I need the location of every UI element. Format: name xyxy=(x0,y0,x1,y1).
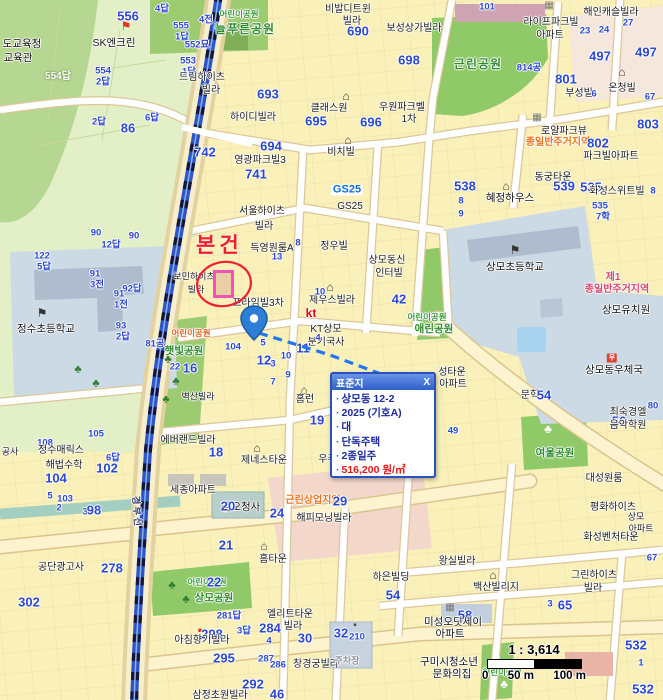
map-label: 구미시청소년 xyxy=(420,657,478,668)
parcel-number: 497 xyxy=(635,46,657,59)
map-label: GS25 xyxy=(337,202,363,212)
map-label: 빌라 xyxy=(584,584,602,594)
gs25-logo: GS25 xyxy=(331,185,363,196)
parcel-number: 104 xyxy=(45,472,67,485)
tree-icon: ♣ xyxy=(164,355,171,366)
tree-icon: ♣ xyxy=(162,395,169,406)
map-label: 음악학원 xyxy=(610,421,647,431)
railway-label: 경부선 xyxy=(130,496,142,529)
park-label: 여울공원 xyxy=(536,448,575,459)
popup-body: ·상모동 12-2·2025 (기호A)·대·단독주택·2종일주·516,200… xyxy=(332,390,434,477)
scale-tick-50: 50 m xyxy=(508,670,534,682)
parcel-number: 27 xyxy=(623,18,634,28)
map-label: 로얄파크뷰 xyxy=(541,127,587,137)
parcel-number: 90 xyxy=(129,231,140,241)
parcel-number: 86 xyxy=(121,122,135,135)
house-icon: ⌂ xyxy=(618,66,625,78)
map-label: 홈타운 xyxy=(259,555,287,565)
parcel-number: 19 xyxy=(310,414,324,427)
parcel-number: 13 xyxy=(272,252,283,262)
parcel-number: 67 xyxy=(645,92,656,102)
parcel-number: 2답 xyxy=(96,77,110,87)
map-label: 공사 xyxy=(2,448,19,457)
park-label: 늘푸른공원 xyxy=(215,23,275,35)
parcel-number: 101 xyxy=(479,2,495,12)
parcel-number: 54 xyxy=(537,389,551,402)
popup-item: ·단독주택 xyxy=(334,435,432,449)
map-label: 세종아파트 xyxy=(170,486,216,496)
map-label: 벽산빌라 xyxy=(181,393,214,402)
house-icon: ⌂ xyxy=(260,540,267,552)
map-label: 해피모닝빌라 xyxy=(296,514,351,524)
parcel-number: 24 xyxy=(270,507,284,520)
house-icon: ⌂ xyxy=(342,90,349,102)
zone-label: 종일반주거지역 xyxy=(526,138,590,148)
map-label: 하은빌딩 xyxy=(373,573,410,583)
parcel-number: 538 xyxy=(454,180,476,193)
parcel-number: 3 xyxy=(547,599,552,609)
standard-parcel-popup: 표준지 X ·상모동 12-2·2025 (기호A)·대·단독주택·2종일주·5… xyxy=(330,372,436,478)
building-icon: ▦ xyxy=(532,113,541,123)
tree-icon: ♣ xyxy=(172,377,179,388)
parcel-number: 9 xyxy=(458,209,463,219)
parcel-number: 46 xyxy=(270,688,284,700)
parcel-number: 497 xyxy=(589,50,611,63)
parcel-number: 54 xyxy=(386,589,400,602)
parcel-number: 4전 xyxy=(199,15,213,25)
parcel-number: 741 xyxy=(245,168,267,181)
parcel-number: 4답 xyxy=(155,4,169,14)
parcel-number: 8 xyxy=(650,186,655,196)
map-label: 제우스빌라 xyxy=(309,296,355,306)
parcel-number: 539 xyxy=(553,180,575,193)
parcel-number: 49 xyxy=(448,426,459,436)
parcel-number: 29 xyxy=(333,495,347,508)
map-label: 비치빌 xyxy=(327,148,355,158)
map-label: 클래스원 xyxy=(311,104,348,114)
popup-item: ·516,200 원/㎡ xyxy=(334,463,432,477)
parcel-number: 24 xyxy=(599,25,610,35)
map-label: 우원파크벨 xyxy=(379,103,425,113)
parcel-number: 553 xyxy=(180,56,196,66)
map-label: 에버랜드빌라 xyxy=(160,436,215,446)
map-label: 드림하이츠 xyxy=(179,73,225,83)
parcel-number: 42 xyxy=(392,293,406,306)
parcel-number: 210 xyxy=(349,632,365,642)
park-label: 어린이공원 xyxy=(171,329,210,338)
parcel-number: 105 xyxy=(88,429,104,439)
parcel-number: 5 xyxy=(260,338,265,348)
tree-icon: ♣ xyxy=(74,365,81,376)
school-icon: ⚑ xyxy=(510,244,521,256)
parcel-number: 92답 xyxy=(122,284,141,294)
parcel-number: 556 xyxy=(117,10,139,23)
parcel-number: 18 xyxy=(209,446,223,459)
map-label: 화성스위트빌 xyxy=(589,187,644,197)
map-label: 부성빌 xyxy=(565,89,593,99)
map-label: 라이프파크빌 xyxy=(523,18,578,28)
parcel-number: 555 xyxy=(173,21,189,31)
parcel-number: 3전 xyxy=(90,280,104,290)
parcel-number: 803 xyxy=(637,118,659,131)
parcel-number: 802 xyxy=(587,137,609,150)
parcel-number: 6답 xyxy=(145,113,159,123)
parcel-number: 532 xyxy=(632,683,654,696)
parcel-number: 2 xyxy=(56,503,61,513)
parcel-number: 23 xyxy=(580,26,591,36)
map-label: 상모유치원 xyxy=(602,305,650,316)
parcel-number: 98 xyxy=(87,504,101,517)
office-icon: ▪ xyxy=(353,621,357,631)
zone-label: 제1 xyxy=(606,273,621,283)
parcel-number: 11 xyxy=(296,342,310,355)
parcel-number: 7학 xyxy=(596,212,610,222)
parcel-number: 4 xyxy=(266,636,271,646)
parcel-number: 4 xyxy=(315,333,320,343)
parcel-number: 5 xyxy=(47,491,52,501)
scale-bar xyxy=(487,659,582,669)
map-label: 도교육청 xyxy=(3,39,42,50)
parcel-number: 2답 xyxy=(92,117,106,127)
map-label: 해법수학 xyxy=(46,461,83,471)
parcel-number: 693 xyxy=(257,88,279,101)
map-label: 정수초등학교 xyxy=(17,324,75,335)
parcel-number: 80 xyxy=(648,401,659,411)
map-label: 홈런 xyxy=(296,395,314,405)
park-label: 근린공원 xyxy=(454,58,502,70)
parcel-number: 1전 xyxy=(114,300,128,310)
parcel-number: 7 xyxy=(270,377,275,387)
map-label: 상모 xyxy=(628,513,645,522)
parcel-number: 801 xyxy=(555,73,577,86)
map-label: 그린하이츠 xyxy=(571,571,617,581)
map-label: 빌라 xyxy=(202,86,220,96)
parcel-number: 93 xyxy=(116,321,127,331)
popup-item: ·2종일주 xyxy=(334,449,432,463)
map-label: 인터빌 xyxy=(375,269,403,279)
parcel-number: 696 xyxy=(360,116,382,129)
parcel-number: 6 xyxy=(591,89,596,99)
map-label: 성타운 xyxy=(438,368,466,378)
map-label: 온청빌 xyxy=(608,84,636,94)
map-label: 하이디빌라 xyxy=(230,113,276,123)
map-label: 상모동우체국 xyxy=(585,365,643,376)
tree-icon: ♣ xyxy=(92,379,99,390)
parcel-number: 5답 xyxy=(37,262,51,272)
house-icon: ⌂ xyxy=(326,281,333,293)
parcel-number: 554답 xyxy=(45,72,71,82)
popup-item: ·상모동 12-2 xyxy=(334,392,432,406)
map-label: 아파트 xyxy=(536,31,564,41)
parcel-number: 30 xyxy=(298,632,312,645)
parcel-number: 554 xyxy=(95,66,111,76)
map-label: 대성원룸 xyxy=(586,474,623,484)
parcel-number: 32 xyxy=(334,627,348,640)
map-label: 아파트 xyxy=(439,380,467,390)
map-label: 창경궁빌라 xyxy=(293,660,339,670)
map-label: 빌라 xyxy=(188,286,205,295)
house-icon: ⌂ xyxy=(489,569,496,581)
parcel-number: 284 xyxy=(259,622,281,635)
map-label: 파크빌아파트 xyxy=(583,152,638,162)
popup-title: 표준지 xyxy=(336,375,364,390)
map-label: 분기국사 xyxy=(308,338,345,348)
map-label: 미성오딧세이 xyxy=(424,617,482,628)
map-label: 공단광고사 xyxy=(38,563,84,573)
parcel-number: 742 xyxy=(194,146,216,159)
parcel-number: 281답 xyxy=(217,611,242,621)
map-label: 서울하이츠 xyxy=(239,207,285,217)
map-label: 영광파크빌3 xyxy=(234,156,286,166)
kt-logo: kt xyxy=(306,307,317,319)
map-label: 삼정초원빌라 xyxy=(192,691,247,700)
school-icon: ⚑ xyxy=(37,307,48,319)
scale-ratio: 1 : 3,614 xyxy=(478,642,590,657)
map-label: 아파트 xyxy=(436,629,465,640)
house-icon: ⌂ xyxy=(502,180,509,192)
parcel-number: 535 xyxy=(592,201,608,211)
parcel-number: 91 xyxy=(114,289,125,299)
subject-annotation: 본건 xyxy=(196,229,243,259)
house-icon: ⌂ xyxy=(344,134,351,146)
map-label: 빌라 xyxy=(255,222,273,232)
parcel-number: 8 xyxy=(458,196,463,206)
parcel-number: 12 xyxy=(257,354,271,367)
map-label: 왕실빌라 xyxy=(439,557,476,567)
parcel-number: 16 xyxy=(183,362,197,375)
parcel-number: 292 xyxy=(242,678,264,691)
map-label: 제네스타운 xyxy=(241,456,287,466)
parcel-number: 1 xyxy=(638,658,643,668)
parcel-number: 10 xyxy=(281,351,292,361)
map-label: 비발디트윈 xyxy=(325,5,371,15)
parcel-number: 2답 xyxy=(116,332,130,342)
map-label: 교육관 xyxy=(4,53,33,64)
parcel-number: 532 xyxy=(625,639,647,652)
park-label: 어린이공원 xyxy=(407,313,446,322)
parcel-number: 295 xyxy=(213,652,235,665)
parcel-number: 20 xyxy=(221,500,235,513)
popup-header: 표준지 X xyxy=(332,374,434,390)
parcel-number: 8 xyxy=(295,238,300,248)
parcel-number: 695 xyxy=(305,115,327,128)
scale-indicator: 1 : 3,614 0 50 m 100 m xyxy=(478,642,590,682)
map-label: 1차 xyxy=(402,115,417,125)
parcel-number: 65 xyxy=(558,599,572,612)
map-label: 보민하이츠 xyxy=(173,273,214,282)
popup-item: ·대 xyxy=(334,420,432,434)
popup-close-button[interactable]: X xyxy=(423,377,430,388)
map-label: 혜정하우스 xyxy=(486,193,534,204)
parcel-number: 91 xyxy=(90,269,101,279)
map-label: 보성상가빌라 xyxy=(386,24,441,34)
scale-tick-0: 0 xyxy=(482,670,488,682)
parcel-number: 552묘 xyxy=(185,40,210,50)
tree-icon: ♣ xyxy=(168,581,175,592)
map-label: 정우빌 xyxy=(320,242,348,252)
parcel-number: 22 xyxy=(207,576,221,589)
map-label: SK엔크린 xyxy=(93,38,136,49)
tree-icon: ♣ xyxy=(544,423,552,435)
popup-item: ·2025 (기호A) xyxy=(334,406,432,420)
parcel-number: 102 xyxy=(96,462,118,475)
post-office-icon: 우 xyxy=(607,354,617,363)
park-label: 어린이공원 xyxy=(219,10,258,19)
parcel-number: 3 xyxy=(270,359,275,369)
parcel-number: 814공 xyxy=(517,63,542,73)
map-label: 상모동신 xyxy=(369,256,406,266)
parcel-number: 90 xyxy=(91,228,102,238)
building-icon: ▦ xyxy=(544,1,553,11)
parcel-number: 21 xyxy=(219,539,233,552)
parcel-number: 12답 xyxy=(101,240,120,250)
parcel-number: 81공 xyxy=(145,339,164,349)
map-label: 아침향기빌라 xyxy=(174,636,229,646)
parcel-number: 690 xyxy=(347,25,369,38)
parcel-number: 286 xyxy=(270,660,286,670)
map-canvas[interactable]: 도교육청교육관⚑SK엔크린5564답5551답4전552묘5531답5542답5… xyxy=(0,0,663,700)
map-label: 정수매릭스 xyxy=(38,446,84,456)
house-icon: ⌂ xyxy=(253,442,260,454)
parcel-number: 9 xyxy=(285,370,290,380)
parcel-number: 3답 xyxy=(237,626,251,636)
parcel-number: 698 xyxy=(398,54,420,67)
map-label: 상모초등학교 xyxy=(486,262,544,273)
parcel-number: 302 xyxy=(18,596,40,609)
park-label: 애린공원 xyxy=(415,324,454,335)
building-icon: ▦ xyxy=(445,603,454,613)
map-label: 화성벤처타운 xyxy=(583,533,638,543)
map-labels-layer: 도교육청교육관⚑SK엔크린5564답5551답4전552묘5531답5542답5… xyxy=(0,0,663,700)
parcel-number: 104 xyxy=(225,342,241,352)
map-label: 백산빌리지 xyxy=(473,583,519,593)
zone-label: 종일반주거지역 xyxy=(585,285,649,295)
parcel-number: 6답 xyxy=(106,453,120,463)
map-label: 문화의집 xyxy=(433,669,472,680)
map-label: 주차장 xyxy=(335,657,360,666)
parcel-number: 278 xyxy=(101,562,123,575)
tree-icon: ♣ xyxy=(182,595,189,606)
scale-tick-100: 100 m xyxy=(553,670,586,682)
parcel-number: 67 xyxy=(647,553,658,563)
map-label: 엘리트타운 xyxy=(267,610,313,620)
parcel-number: 694 xyxy=(260,140,282,153)
parcel-number: 10 xyxy=(315,287,326,297)
park-label: 상모공원 xyxy=(195,593,234,604)
parcel-number: 122 xyxy=(34,251,50,261)
